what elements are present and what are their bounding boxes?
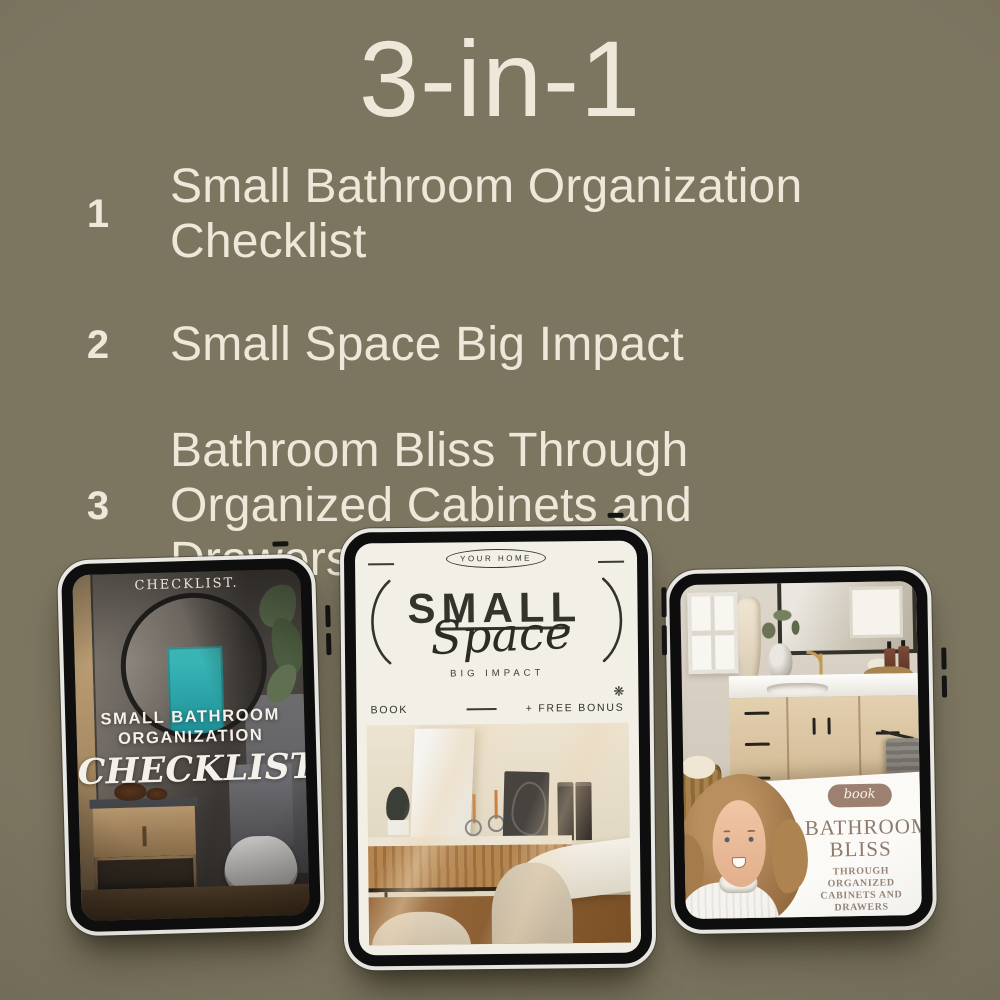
cover-title-line2: BLISS xyxy=(805,837,916,861)
volume-down-button xyxy=(662,625,667,655)
footer-dash xyxy=(467,708,497,710)
eye xyxy=(725,837,730,842)
mirror-window-reflection xyxy=(849,587,902,638)
footer-bonus-label: ❋ + FREE BONUS xyxy=(526,702,625,715)
feature-label: Small Bathroom Organization Checklist xyxy=(170,160,870,269)
checklist-cover: CHECKLIST. SMALL BATHROOM ORGANIZATION C… xyxy=(72,569,310,921)
cover-title: BATHROOM BLISS xyxy=(805,815,917,861)
feature-number: 3 xyxy=(66,484,130,529)
volume-down-button xyxy=(326,633,332,655)
eyebrow xyxy=(723,830,731,834)
corner-dash xyxy=(368,563,394,565)
volume-down-button xyxy=(942,675,947,697)
corner-dash xyxy=(598,561,624,563)
footer-book-label: BOOK xyxy=(371,704,409,716)
feature-item-1: 1 Small Bathroom Organization Checklist xyxy=(66,160,946,269)
power-button xyxy=(608,513,624,518)
eyebrow xyxy=(748,830,756,834)
right-parenthesis-decoration xyxy=(600,577,631,663)
brand-oval-badge: YOUR HOME xyxy=(446,548,546,568)
gold-faucet xyxy=(806,651,822,675)
drawer-handle xyxy=(745,743,770,746)
credenza-photo xyxy=(367,723,631,946)
cover-title-line1: BATHROOM xyxy=(805,815,916,839)
cover-script-title: CHECKLIST xyxy=(77,746,306,793)
smile xyxy=(732,857,746,868)
promo-graphic: 3-in-1 1 Small Bathroom Organization Che… xyxy=(0,0,1000,1000)
sparkle-icon: ❋ xyxy=(613,684,624,700)
page-title: 3-in-1 xyxy=(0,16,1000,141)
cover-subtitle: THROUGH ORGANIZED CABINETS AND DRAWERS xyxy=(805,865,917,916)
volume-up-button xyxy=(661,587,666,617)
cover-subtitle: BIG IMPACT xyxy=(356,667,638,681)
small-space-cover: YOUR HOME SMALL Space BIG IMPACT BOOK ❋ … xyxy=(355,541,641,956)
sink-basin xyxy=(767,683,829,696)
window xyxy=(687,592,738,673)
left-parenthesis-decoration xyxy=(362,579,393,665)
cover-text-block: book BATHROOM BLISS THROUGH ORGANIZED CA… xyxy=(804,783,917,915)
door-handle xyxy=(828,718,831,735)
smiling-woman xyxy=(680,773,804,919)
light-flare-overlay xyxy=(367,723,631,946)
cover-subtitle-line2: CABINETS AND DRAWERS xyxy=(806,889,917,915)
volume-up-button xyxy=(941,647,946,669)
cover-subtitle-line1: THROUGH ORGANIZED xyxy=(805,865,916,891)
volume-up-button xyxy=(325,605,331,627)
feature-number: 2 xyxy=(66,323,130,368)
eye xyxy=(749,836,754,841)
tablet-mockup-checklist: CHECKLIST. SMALL BATHROOM ORGANIZATION C… xyxy=(57,553,325,936)
bathroom-bliss-cover: book BATHROOM BLISS THROUGH ORGANIZED CA… xyxy=(680,581,922,919)
feature-number: 1 xyxy=(66,192,130,237)
cover-title-art: SMALL Space xyxy=(355,577,638,666)
feature-item-2: 2 Small Space Big Impact xyxy=(66,318,946,373)
drawer-handle xyxy=(745,712,770,715)
tablet-mockup-small-space: YOUR HOME SMALL Space BIG IMPACT BOOK ❋ … xyxy=(340,525,657,970)
woman-face xyxy=(711,800,766,887)
cover-footer: BOOK ❋ + FREE BONUS xyxy=(371,701,625,718)
feature-label: Small Space Big Impact xyxy=(170,318,684,373)
power-button xyxy=(272,541,288,546)
book-badge: book xyxy=(827,783,891,807)
tablet-mockup-bathroom-bliss: book BATHROOM BLISS THROUGH ORGANIZED CA… xyxy=(665,566,937,935)
door-handle xyxy=(813,718,816,735)
cover-title-script: Space xyxy=(429,605,573,665)
cover-title-block: SMALL BATHROOM ORGANIZATION CHECKLIST xyxy=(76,704,306,794)
